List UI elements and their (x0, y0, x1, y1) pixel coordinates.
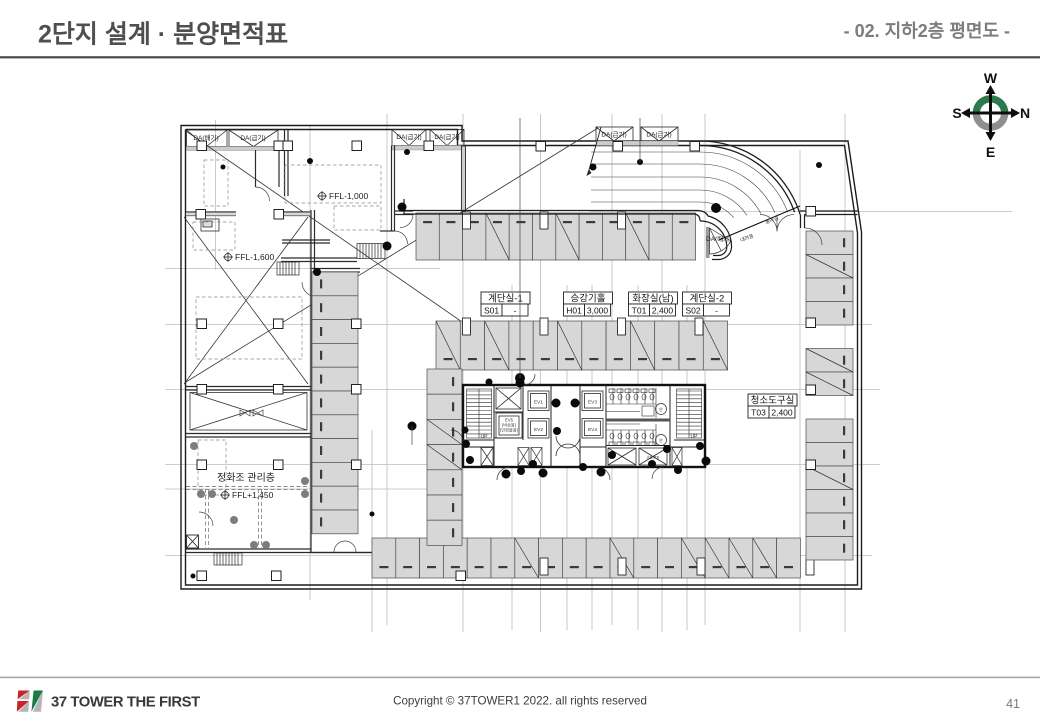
svg-text:3,000: 3,000 (587, 306, 609, 316)
svg-text:37 TOWER THE FIRST: 37 TOWER THE FIRST (51, 695, 200, 711)
svg-text:- 02. 지하2층 평면도 -: - 02. 지하2층 평면도 - (844, 21, 1010, 41)
svg-text:S02: S02 (685, 306, 700, 316)
svg-text:Copyright © 37TOWER1 2022. all: Copyright © 37TOWER1 2022. all rights re… (393, 695, 647, 708)
svg-text:N: N (1020, 105, 1030, 121)
svg-text:UP: UP (481, 434, 489, 440)
svg-text:2단지 설계 · 분양면적표: 2단지 설계 · 분양면적표 (38, 21, 288, 49)
svg-text:2,400: 2,400 (771, 408, 793, 418)
svg-text:EV1: EV1 (534, 400, 543, 406)
svg-text:계단실-2: 계단실-2 (690, 293, 725, 305)
svg-text:H01: H01 (566, 306, 582, 316)
svg-text:화장실(남): 화장실(남) (632, 294, 673, 305)
svg-text:DA(급기): DA(급기) (434, 132, 459, 141)
svg-text:DA(급기): DA(급기) (240, 133, 265, 142)
svg-text:41: 41 (1006, 697, 1020, 711)
svg-text:안: 안 (659, 437, 663, 443)
svg-text:DA(급기): DA(급기) (396, 132, 421, 141)
svg-text:S: S (952, 105, 961, 121)
svg-text:UP: UP (691, 434, 699, 440)
svg-text:-: - (514, 306, 517, 316)
svg-text:E: E (986, 144, 995, 160)
svg-text:EV2: EV2 (534, 427, 543, 433)
svg-text:-: - (715, 306, 718, 316)
svg-text:W: W (984, 70, 998, 86)
svg-text:T03: T03 (751, 408, 766, 418)
svg-text:안: 안 (659, 406, 663, 412)
svg-text:2,400: 2,400 (652, 306, 674, 316)
svg-text:EV4: EV4 (588, 427, 597, 433)
svg-text:FFL+1,450: FFL+1,450 (232, 490, 274, 500)
svg-text:DA(급기): DA(급기) (646, 130, 671, 139)
svg-text:FFL-1,000: FFL-1,000 (329, 191, 368, 201)
svg-text:EV3: EV3 (588, 400, 597, 406)
svg-text:T01: T01 (632, 306, 647, 316)
svg-text:DA(배기): DA(배기) (706, 234, 731, 243)
svg-text:계단실-1: 계단실-1 (488, 293, 523, 305)
svg-text:S01: S01 (484, 306, 499, 316)
svg-text:승강기홀: 승강기홀 (571, 293, 606, 305)
svg-text:(인화물용): (인화물용) (500, 427, 519, 434)
svg-text:AD,PS: AD,PS (647, 455, 660, 460)
svg-text:청소도구실: 청소도구실 (751, 396, 795, 407)
svg-text:정화조 관리층: 정화조 관리층 (217, 472, 275, 484)
svg-text:FFL-1,600: FFL-1,600 (235, 252, 274, 262)
svg-text:DA(급기): DA(급기) (601, 130, 626, 139)
